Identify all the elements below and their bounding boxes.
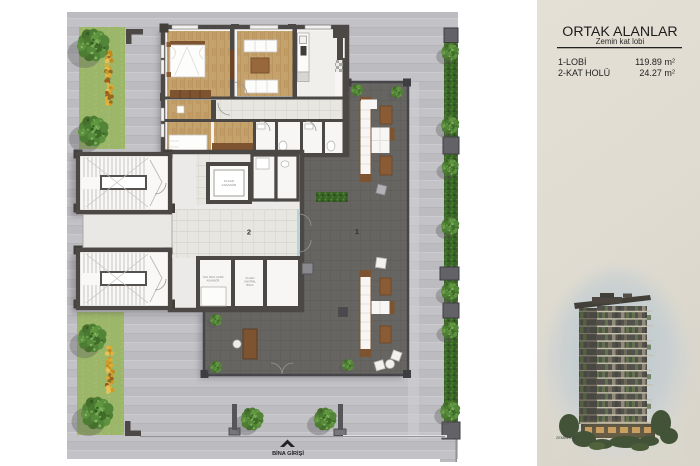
svg-text:1: 1 xyxy=(355,227,359,236)
svg-text:2: 2 xyxy=(247,228,251,237)
svg-text:Zemin kat lobi: Zemin kat lobi xyxy=(596,37,645,46)
svg-text:BİNA GİRİŞİ: BİNA GİRİŞİ xyxy=(272,450,304,457)
svg-text:24.27 m2: 24.27 m2 xyxy=(639,68,675,78)
svg-text:YAN. MUH. ACKR: YAN. MUH. ACKR xyxy=(203,275,224,279)
svg-text:ASANSÖR: ASANSÖR xyxy=(207,279,220,283)
svg-text:SANTRAL: SANTRAL xyxy=(244,280,257,284)
svg-text:119.89 m2: 119.89 m2 xyxy=(635,57,675,67)
svg-text:2-KAT HOLÜ: 2-KAT HOLÜ xyxy=(558,68,610,78)
svg-text:KLGAN: KLGAN xyxy=(246,276,255,280)
svg-text:BOLD: BOLD xyxy=(246,283,253,287)
svg-text:ZEMİN KAT: ZEMİN KAT xyxy=(556,435,577,440)
svg-text:ASANSÖR: ASANSÖR xyxy=(222,183,238,187)
svg-text:1-LOBİ: 1-LOBİ xyxy=(558,57,587,67)
